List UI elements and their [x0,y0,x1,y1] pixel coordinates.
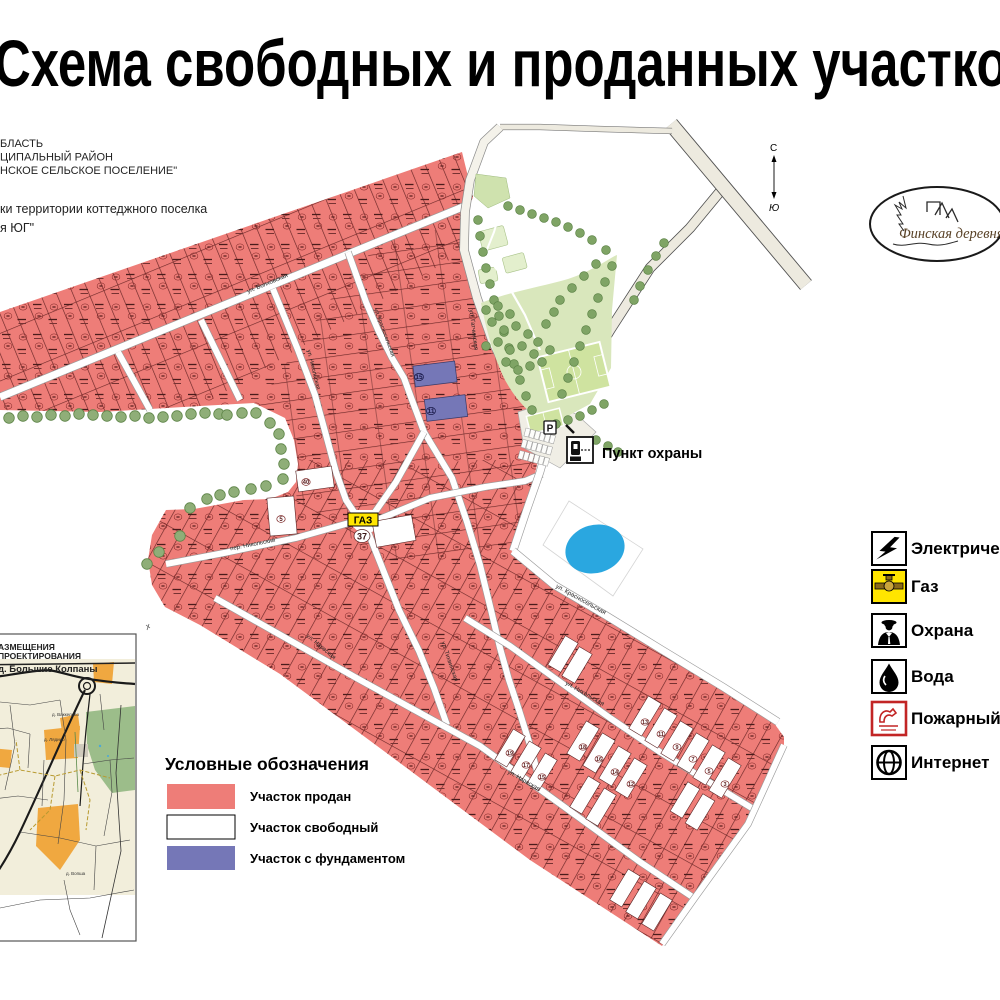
svg-text:Участок свободный: Участок свободный [250,820,378,835]
svg-text:Схема свободных и проданных уч: Схема свободных и проданных участков [0,26,1000,100]
svg-text:Ю: Ю [769,203,779,214]
svg-text:19: 19 [507,751,513,757]
svg-text:18: 18 [580,745,586,751]
svg-text:д. Ваккелово: д. Ваккелово [52,712,79,717]
svg-text:11: 11 [658,732,664,738]
svg-text:15: 15 [415,374,423,381]
svg-text:Охрана: Охрана [911,621,974,640]
svg-text:д. Лядино: д. Лядино [44,737,65,742]
svg-text:Участок продан: Участок продан [250,789,351,804]
svg-text:ГАЗ: ГАЗ [354,516,373,527]
svg-text:ки территории коттеджного посе: ки территории коттеджного поселка [0,202,207,216]
svg-text:5: 5 [707,769,710,775]
svg-text:ЦИПАЛЬНЫЙ РАЙОН: ЦИПАЛЬНЫЙ РАЙОН [0,151,113,164]
svg-text:11: 11 [428,408,435,415]
svg-text:15: 15 [539,775,545,781]
svg-text:13: 13 [642,720,648,726]
svg-text:Пункт охраны: Пункт охраны [602,446,702,462]
svg-text:16: 16 [596,757,602,763]
svg-text:Электричество: Электричество [911,539,1000,558]
svg-text:17: 17 [523,763,529,769]
svg-text:3: 3 [723,782,726,788]
svg-text:д. Большие Колпаны: д. Большие Колпаны [0,664,98,675]
svg-text:д. Вопша: д. Вопша [66,871,86,876]
svg-text:Газ: Газ [911,577,939,596]
svg-text:ПРОЕКТИРОВАНИЯ: ПРОЕКТИРОВАНИЯ [0,651,81,661]
svg-text:С: С [770,143,777,154]
svg-text:9: 9 [675,745,678,751]
svg-text:P: P [547,424,554,435]
svg-text:Условные обозначения: Условные обозначения [165,754,369,774]
svg-text:Интернет: Интернет [911,753,989,772]
svg-text:14: 14 [612,770,619,776]
svg-text:7: 7 [691,757,694,763]
svg-text:37: 37 [357,532,367,542]
svg-text:Участок с фундаментом: Участок с фундаментом [250,851,405,866]
svg-text:Вода: Вода [911,667,954,686]
svg-text:я ЮГ": я ЮГ" [0,221,34,235]
svg-text:Финская деревня: Финская деревня [899,226,1000,242]
svg-text:БЛАСТЬ: БЛАСТЬ [0,138,43,150]
svg-text:12: 12 [628,782,634,788]
svg-text:40: 40 [303,480,310,486]
svg-text:НСКОЕ СЕЛЬСКОЕ ПОСЕЛЕНИЕ": НСКОЕ СЕЛЬСКОЕ ПОСЕЛЕНИЕ" [0,165,177,177]
svg-text:Пожарный водоём: Пожарный водоём [911,709,1000,728]
